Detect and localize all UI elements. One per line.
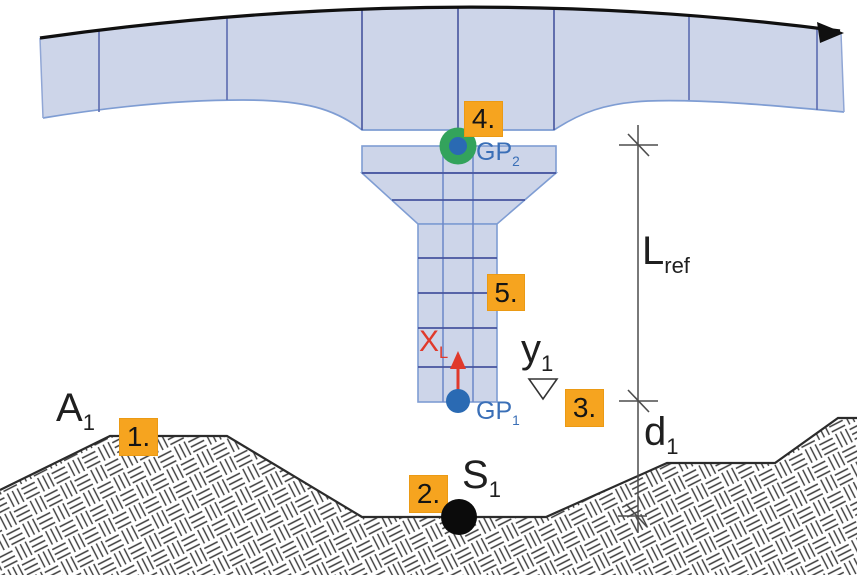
label-GP2-main: GP [476,138,512,166]
water-level-icon [529,379,557,399]
label-y1-main: y [521,327,541,371]
label-d1: d1 [644,412,679,458]
marker-4-badge: 4. [464,101,503,137]
label-GP1-main: GP [476,397,512,425]
label-A1-sub: 1 [83,410,95,435]
gp1-point [446,389,470,413]
marker-3-badge: 3. [565,389,604,427]
label-d1-sub: 1 [666,434,678,459]
label-A1: A1 [56,388,95,434]
pier-cap-taper [362,173,556,224]
label-XL: XL [419,327,448,362]
label-GP2-sub: 2 [512,154,520,169]
label-y1: y1 [521,329,553,375]
label-Lref: Lref [642,231,690,277]
label-A1-main: A [56,386,83,430]
label-XL-sub: L [439,344,448,362]
label-GP1: GP1 [476,399,520,428]
bridge-deck [40,7,844,130]
label-y1-sub: 1 [541,351,553,376]
marker-2-badge: 2. [409,475,448,513]
marker-1-badge: 1. [119,418,158,456]
label-Lref-sub: ref [664,253,690,278]
label-S1-sub: 1 [489,477,501,502]
diagram-canvas: 1. 2. 3. 4. 5. A1 S1 y1 d1 Lref GP2 GP1 … [0,0,857,575]
label-S1: S1 [462,455,501,501]
label-GP1-sub: 1 [512,413,520,428]
label-GP2: GP2 [476,140,520,169]
label-Lref-main: L [642,229,664,273]
label-S1-main: S [462,453,489,497]
label-d1-main: d [644,410,666,454]
label-XL-main: X [419,325,439,358]
s1-point [441,499,477,535]
deck-fill [40,7,844,130]
marker-5-badge: 5. [487,274,525,311]
